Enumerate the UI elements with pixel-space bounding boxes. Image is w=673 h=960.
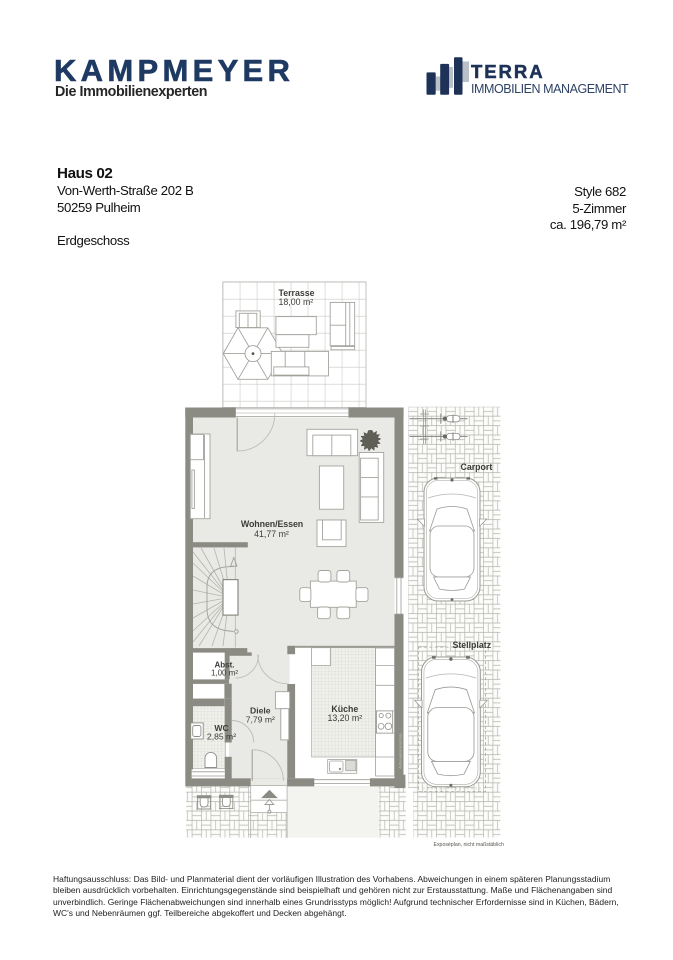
svg-text:Außenwasseranschluss: Außenwasseranschluss xyxy=(399,733,403,769)
svg-text:2,85 m²: 2,85 m² xyxy=(207,732,236,742)
svg-text:41,77 m²: 41,77 m² xyxy=(254,529,289,539)
svg-text:Stellplatz: Stellplatz xyxy=(452,640,491,650)
svg-text:13,20 m²: 13,20 m² xyxy=(327,713,362,723)
svg-text:Wohnen/Essen: Wohnen/Essen xyxy=(241,519,303,529)
svg-text:Exposéplan, nicht maßstäblich: Exposéplan, nicht maßstäblich xyxy=(434,842,504,848)
svg-text:Carport: Carport xyxy=(461,462,493,472)
svg-text:1,00 m²: 1,00 m² xyxy=(211,669,238,678)
svg-text:18,00 m²: 18,00 m² xyxy=(279,297,314,307)
svg-text:7,79 m²: 7,79 m² xyxy=(246,715,275,725)
